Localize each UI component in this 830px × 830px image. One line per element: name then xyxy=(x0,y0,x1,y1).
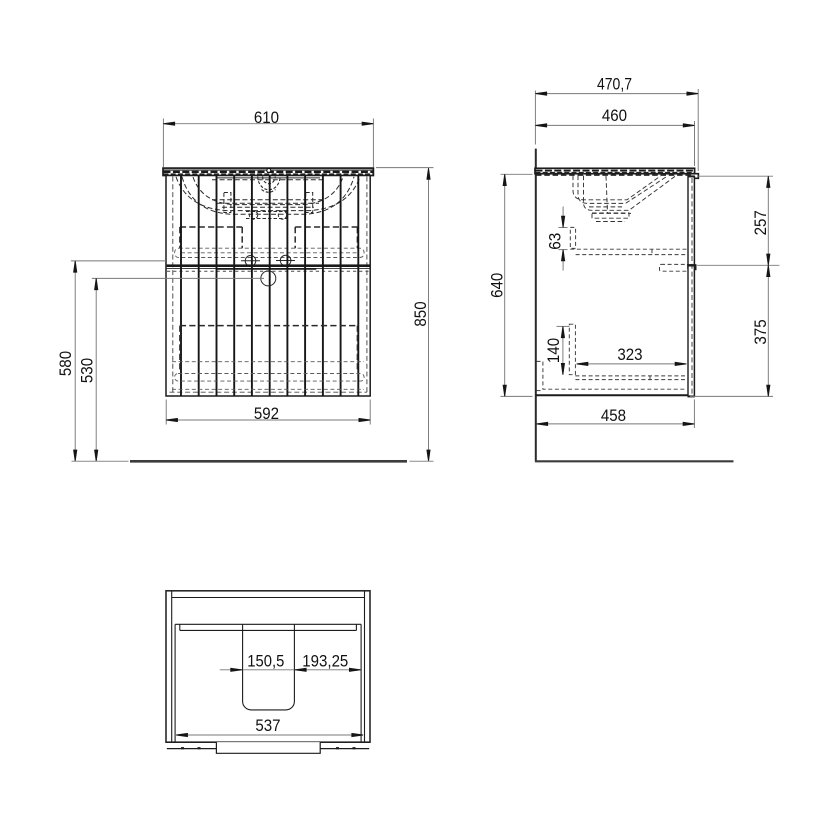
svg-text:150,5: 150,5 xyxy=(247,651,284,670)
svg-text:592: 592 xyxy=(254,404,279,423)
svg-text:375: 375 xyxy=(751,319,770,344)
svg-text:460: 460 xyxy=(602,106,627,125)
svg-text:530: 530 xyxy=(78,358,97,383)
svg-text:140: 140 xyxy=(544,338,563,363)
svg-text:193,25: 193,25 xyxy=(302,651,348,670)
svg-text:580: 580 xyxy=(56,351,75,376)
svg-text:458: 458 xyxy=(601,406,626,425)
svg-text:257: 257 xyxy=(751,210,770,235)
svg-text:470,7: 470,7 xyxy=(597,74,632,93)
svg-text:640: 640 xyxy=(488,273,507,298)
svg-text:850: 850 xyxy=(411,301,430,326)
svg-text:610: 610 xyxy=(254,108,279,127)
svg-text:537: 537 xyxy=(255,716,280,735)
svg-text:63: 63 xyxy=(545,233,564,250)
svg-text:323: 323 xyxy=(617,345,642,364)
